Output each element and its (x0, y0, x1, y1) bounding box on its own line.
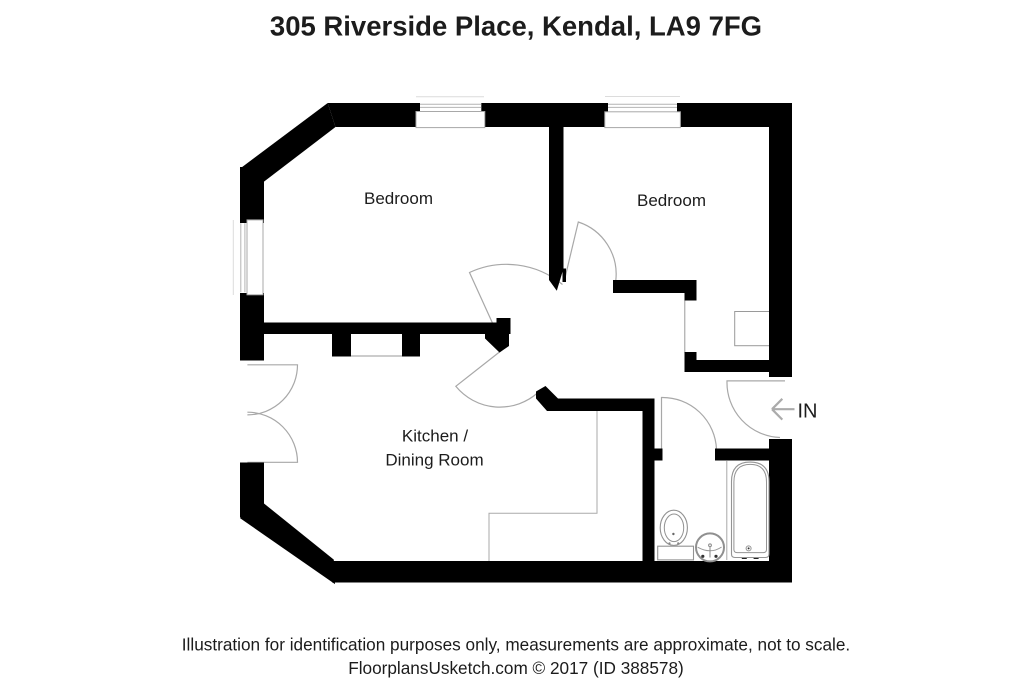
svg-text:IN: IN (798, 401, 818, 423)
svg-text:FloorplansUsketch.com © 2017 (: FloorplansUsketch.com © 2017 (ID 388578) (348, 658, 684, 678)
svg-text:Kitchen /: Kitchen / (402, 426, 468, 445)
svg-text:Bedroom: Bedroom (637, 191, 706, 210)
svg-text:Illustration for identificatio: Illustration for identification purposes… (182, 635, 850, 655)
svg-text:Bedroom: Bedroom (364, 189, 433, 208)
svg-text:305 Riverside Place, Kendal, L: 305 Riverside Place, Kendal, LA9 7FG (270, 11, 762, 42)
svg-text:Dining Room: Dining Room (385, 450, 483, 469)
